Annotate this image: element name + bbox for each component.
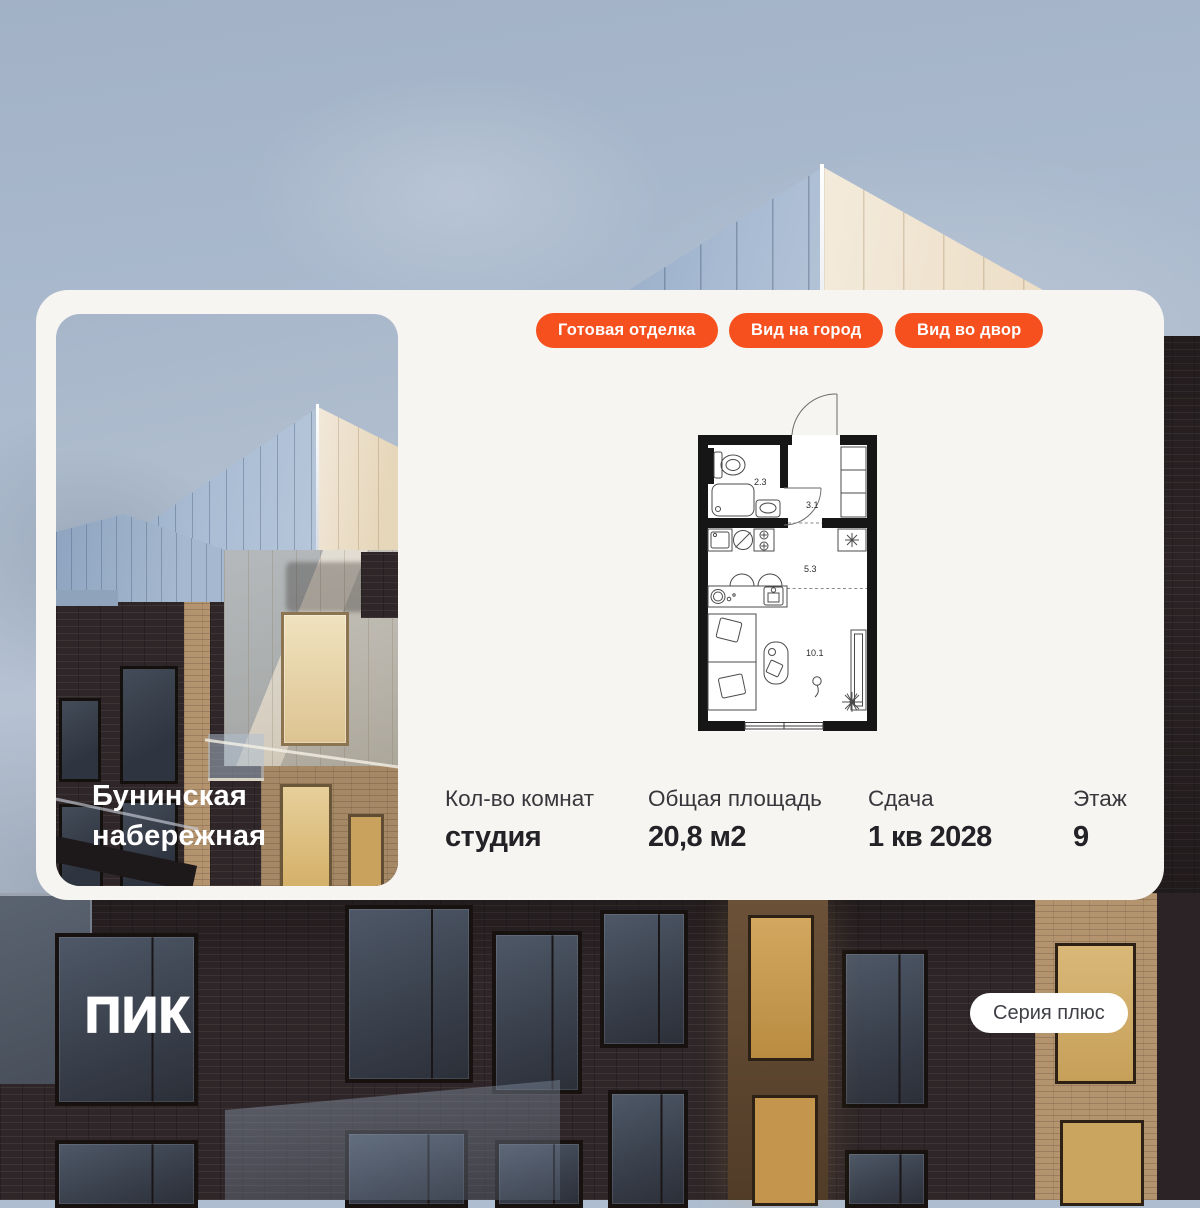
lit-window bbox=[752, 1095, 818, 1206]
stat-label: Сдача bbox=[868, 786, 992, 812]
stat-label: Общая площадь bbox=[648, 786, 822, 812]
room-area-kitchen: 5.3 bbox=[804, 564, 817, 574]
dark-brick-edge bbox=[1157, 893, 1200, 1200]
brick-building-bottom bbox=[0, 893, 1200, 1200]
floorplan-drawing: 2.3 3.1 5.3 10.1 bbox=[680, 390, 890, 740]
stat-value: 9 bbox=[1073, 821, 1127, 854]
photo-corner-edge bbox=[316, 404, 319, 562]
listing-card[interactable]: Бунинская набережная Готовая отделка Вид… bbox=[36, 290, 1164, 900]
badge-label: Готовая отделка bbox=[558, 321, 696, 340]
pik-logo: ПИК bbox=[85, 986, 190, 1044]
stat-value: 1 кв 2028 bbox=[868, 821, 992, 854]
stat-area: Общая площадь 20,8 м2 bbox=[648, 786, 822, 854]
stat-value: студия bbox=[445, 821, 594, 854]
stat-label: Кол-во комнат bbox=[445, 786, 594, 812]
building-window bbox=[600, 910, 688, 1048]
photo-brick-pillar bbox=[361, 552, 398, 618]
room-area-bathroom: 2.3 bbox=[754, 477, 767, 487]
room-area-living: 10.1 bbox=[806, 648, 824, 658]
photo-lit-window bbox=[281, 612, 349, 746]
project-title-line1: Бунинская bbox=[92, 776, 266, 816]
badge-label: Вид на город bbox=[751, 321, 861, 340]
stat-delivery: Сдача 1 кв 2028 bbox=[868, 786, 992, 854]
series-plus-label: Серия плюс bbox=[993, 1002, 1105, 1025]
building-window bbox=[55, 1140, 198, 1208]
photo-lit-window bbox=[280, 784, 332, 886]
building-window bbox=[608, 1090, 688, 1208]
stat-value: 20,8 м2 bbox=[648, 821, 822, 854]
series-plus-button[interactable]: Серия плюс bbox=[970, 993, 1128, 1033]
tan-brick-column bbox=[1035, 893, 1157, 1200]
building-window bbox=[492, 931, 582, 1094]
photo-window-band bbox=[56, 590, 118, 606]
badge-label: Вид во двор bbox=[917, 321, 1021, 340]
room-area-hallway: 3.1 bbox=[806, 500, 819, 510]
stat-floor: Этаж 9 bbox=[1073, 786, 1127, 854]
badge-yard-view: Вид во двор bbox=[895, 313, 1043, 348]
lit-window bbox=[748, 915, 814, 1061]
building-window bbox=[845, 1150, 928, 1208]
stat-label: Этаж bbox=[1073, 786, 1127, 812]
project-title-line2: набережная bbox=[92, 816, 266, 856]
stat-rooms: Кол-во комнат студия bbox=[445, 786, 594, 854]
badge-finishing: Готовая отделка bbox=[536, 313, 718, 348]
building-window bbox=[345, 905, 473, 1083]
photo-lit-window bbox=[348, 814, 384, 886]
lit-facade-column bbox=[728, 900, 828, 1200]
project-photo: Бунинская набережная bbox=[56, 314, 398, 886]
photo-window bbox=[120, 666, 178, 784]
building-window bbox=[842, 950, 928, 1108]
photo-window bbox=[59, 698, 101, 782]
badge-city-view: Вид на город bbox=[729, 313, 883, 348]
balcony-glass bbox=[225, 1080, 560, 1200]
lit-window bbox=[1060, 1120, 1144, 1206]
project-title: Бунинская набережная bbox=[92, 776, 266, 856]
